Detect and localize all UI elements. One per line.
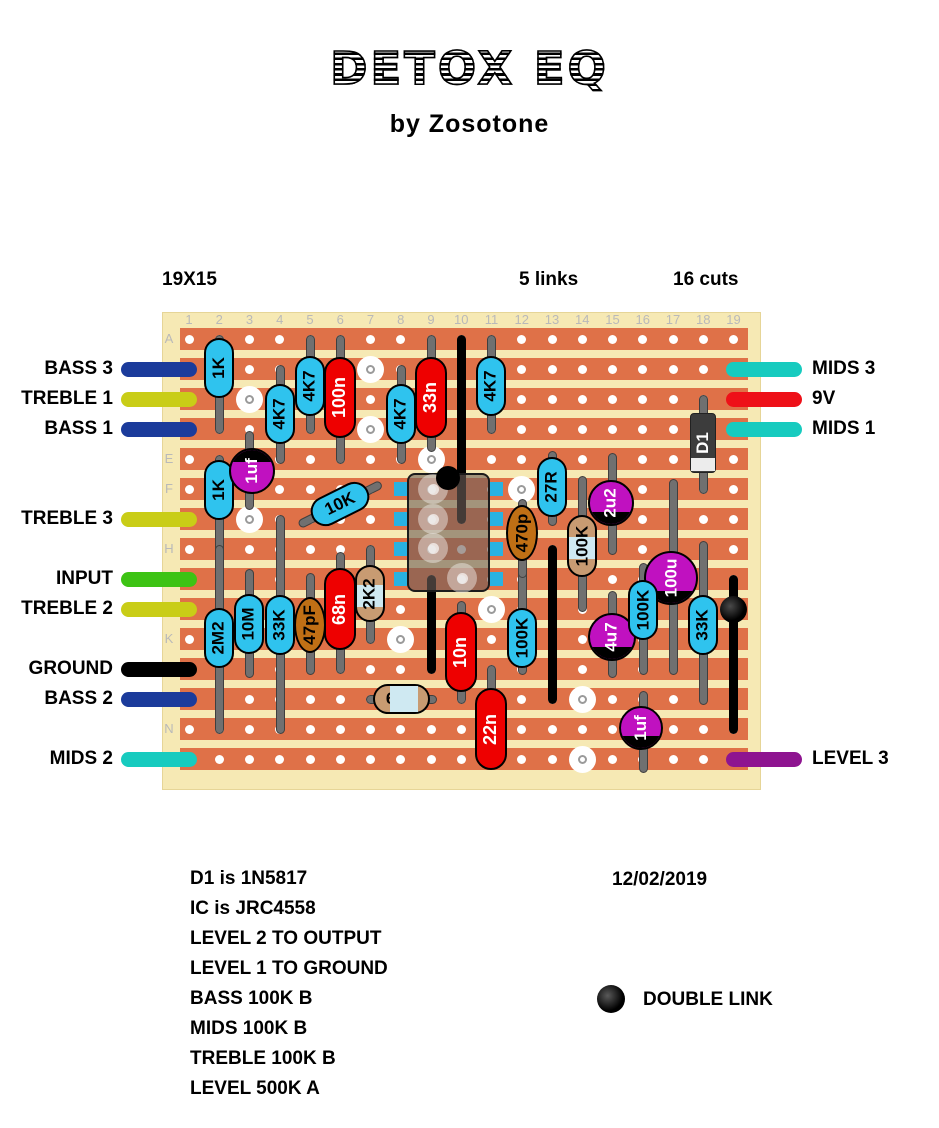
hole [669,455,678,464]
component-label: 2M2 [209,621,229,654]
hole [336,695,345,704]
hole [548,395,557,404]
hole [729,455,738,464]
component-label [396,635,405,644]
ic-pin [394,542,407,556]
column-number: 10 [451,313,471,327]
double-link-icon [597,985,625,1013]
component-label [517,485,526,494]
hole [608,395,617,404]
component-label: 10M [239,607,259,640]
hole [578,335,587,344]
hole [427,725,436,734]
column-number: 17 [663,313,683,327]
hole [396,605,405,614]
double-link-label: DOUBLE LINK [643,989,773,1011]
component-label [578,695,587,704]
track-cut [357,356,384,383]
pin-label-BASS 1: BASS 1 [0,419,113,439]
component-label [245,515,254,524]
hole [578,725,587,734]
column-number: 11 [482,313,502,327]
hole [669,335,678,344]
column-number: 15 [603,313,623,327]
component-label [245,395,254,404]
component-label [427,455,436,464]
column-number: 18 [693,313,713,327]
date-label: 12/02/2019 [612,869,707,891]
component-label [366,365,375,374]
component-label: 1K [209,479,229,501]
resistor-6K8: 6K8 [373,684,430,714]
resistor-100K: 100K [628,580,658,640]
capacitor-1uf: 1uf [229,448,275,494]
hole [245,365,254,374]
hole [548,755,557,764]
column-number: 3 [240,313,260,327]
capacitor-100n: 100n [324,357,356,438]
component-label: 1K [209,357,229,379]
track-cut [236,386,263,413]
note-line: LEVEL 500K A [190,1074,610,1104]
pin-label-INPUT: INPUT [0,569,113,589]
pin-label-TREBLE 3: TREBLE 3 [0,509,113,529]
pin-wire-9V [726,392,802,407]
hole [548,365,557,374]
resistor-33K: 33K [265,595,295,655]
component-label: 1uf [242,458,262,484]
column-number: 2 [209,313,229,327]
note-line: MIDS 100K B [190,1014,610,1044]
row-letter: F [161,482,177,496]
pin-wire-BASS 3 [121,362,197,377]
note-line: LEVEL 2 TO OUTPUT [190,924,610,954]
pin-label-MIDS 2: MIDS 2 [0,749,113,769]
hole [336,755,345,764]
pin-label-TREBLE 2: TREBLE 2 [0,599,113,619]
column-number: 12 [512,313,532,327]
component-label: 100u [661,559,681,598]
hole [366,395,375,404]
component-label: 33K [270,609,290,640]
ic-pin [490,482,503,496]
hole [275,485,284,494]
capacitor-2u2: 2u2 [588,480,634,526]
hole [608,335,617,344]
hole [366,665,375,674]
hole [517,425,526,434]
component-label: 27R [542,471,562,502]
hole [729,515,738,524]
component-label: 22n [481,713,502,744]
note-line: BASS 100K B [190,984,610,1014]
pin-label-TREBLE 1: TREBLE 1 [0,389,113,409]
hole [517,695,526,704]
ic-pin [394,572,407,586]
column-number: 14 [572,313,592,327]
component-label: 100K [572,526,592,567]
hole [608,695,617,704]
hole [457,755,466,764]
pin-label-BASS 2: BASS 2 [0,689,113,709]
ic-pin [490,542,503,556]
component-label: D1 [693,432,713,454]
pin-wire-INPUT [121,572,197,587]
hole [578,395,587,404]
hole [396,755,405,764]
ic-notch [436,466,460,490]
component-label: 4K7 [481,370,501,401]
resistor-4K7: 4K7 [265,384,295,444]
hole [517,725,526,734]
component-label: 470p [512,514,532,553]
track-cut [569,686,596,713]
component-label: 100K [512,618,532,659]
resistor-10M: 10M [234,594,264,654]
pin-wire-GROUND [121,662,197,677]
resistor-2K2: 2K2 [355,565,385,622]
resistor-4K7: 4K7 [386,384,416,444]
row-letter: K [161,632,177,646]
column-number: 5 [300,313,320,327]
hole [638,485,647,494]
track-cut [236,506,263,533]
pin-wire-BASS 2 [121,692,197,707]
links-count-label: 5 links [519,269,578,291]
note-line: TREBLE 100K B [190,1044,610,1074]
hole [245,725,254,734]
capacitor-68n: 68n [324,568,356,650]
column-number: 13 [542,313,562,327]
note-line: IC is JRC4558 [190,894,610,924]
hole [215,755,224,764]
hole [245,695,254,704]
resistor-1K: 1K [204,338,234,398]
hole [366,515,375,524]
hole [548,335,557,344]
hole [699,365,708,374]
hole [306,755,315,764]
component-label: 4K7 [391,398,411,429]
hole [578,425,587,434]
column-number: 8 [391,313,411,327]
hole [396,335,405,344]
hole [185,455,194,464]
hole [669,395,678,404]
hole [638,365,647,374]
column-number: 7 [361,313,381,327]
hole [638,425,647,434]
hole [699,515,708,524]
hole [185,725,194,734]
hole [245,755,254,764]
row-letter: H [161,542,177,556]
row-letter: E [161,452,177,466]
hole [245,335,254,344]
hole [275,335,284,344]
hole [517,455,526,464]
hole [608,575,617,584]
capacitor-470p: 470p [506,505,538,561]
hole [699,335,708,344]
hole [517,755,526,764]
ic-hole [418,504,448,534]
ic-hole [418,533,448,563]
resistor-100K: 100K [507,608,537,668]
hole [517,365,526,374]
hole [548,425,557,434]
component-label: 4K7 [300,370,320,401]
hole [638,395,647,404]
track-cut [478,596,505,623]
hole [306,545,315,554]
hole [185,335,194,344]
resistor-2M2: 2M2 [204,608,234,668]
hole [669,755,678,764]
hole [457,725,466,734]
page: 12345678910111213141516171819ABCDEFGHIJK… [0,0,939,1128]
component-label: 33K [693,609,713,640]
ic-pin [490,512,503,526]
pin-label-LEVEL 3: LEVEL 3 [812,749,939,769]
cuts-count-label: 16 cuts [673,269,738,291]
capacitor-1uf: 1uf [619,706,663,750]
component-label: 68n [330,593,351,624]
capacitor-33n: 33n [415,357,447,438]
component-label [487,605,496,614]
hole [729,545,738,554]
resistor-33K: 33K [688,595,718,655]
wire-link [548,545,557,704]
hole [366,455,375,464]
hole [578,665,587,674]
hole [306,695,315,704]
row-letter: N [161,722,177,736]
track-cut [357,416,384,443]
double-link-dot [720,596,747,623]
pin-label-GROUND: GROUND [0,659,113,679]
ic-pin [490,572,503,586]
board-size-label: 19X15 [162,269,217,291]
hole [669,725,678,734]
hole [669,695,678,704]
hole [306,455,315,464]
note-line: D1 is 1N5817 [190,864,610,894]
hole [336,725,345,734]
hole [608,425,617,434]
resistor-100K: 100K [567,515,597,577]
hole [396,665,405,674]
column-number: 19 [724,313,744,327]
pin-wire-MIDS 3 [726,362,802,377]
component-label [366,425,375,434]
component-label: 2u2 [601,488,621,517]
pin-wire-TREBLE 2 [121,602,197,617]
hole [578,455,587,464]
capacitor-47pF: 47pF [294,597,326,653]
track-cut [569,746,596,773]
component-label [457,573,468,584]
hole [608,755,617,764]
pin-label-BASS 3: BASS 3 [0,359,113,379]
page-title: DETOX EQ [0,42,939,95]
hole [608,725,617,734]
hole [669,365,678,374]
pin-wire-LEVEL 3 [726,752,802,767]
hole [699,755,708,764]
hole [487,635,496,644]
component-label [390,686,418,712]
column-number: 4 [270,313,290,327]
hole [245,545,254,554]
component-label [428,484,439,495]
component-label: 33n [421,382,442,413]
hole [638,515,647,524]
hole [306,725,315,734]
hole [638,455,647,464]
track-cut [387,626,414,653]
hole [638,335,647,344]
column-number: 9 [421,313,441,327]
component-label: 2K2 [360,578,380,609]
column-number: 6 [330,313,350,327]
hole [517,335,526,344]
hole [729,335,738,344]
hole [366,335,375,344]
hole [366,755,375,764]
hole [487,455,496,464]
pin-wire-MIDS 2 [121,752,197,767]
ic-hole [447,563,477,593]
pin-wire-BASS 1 [121,422,197,437]
capacitor-22n: 22n [475,688,507,770]
pin-wire-TREBLE 1 [121,392,197,407]
hole [427,755,436,764]
hole [185,635,194,644]
hole [185,485,194,494]
component-label [428,543,439,554]
hole [608,365,617,374]
component-label: 4K7 [270,398,290,429]
pin-label-MIDS 1: MIDS 1 [812,419,939,439]
resistor-27R: 27R [537,457,567,517]
component-label [578,755,587,764]
component-label [428,514,439,525]
hole [185,545,194,554]
component-label: 100K [633,590,653,631]
component-label: 4u7 [602,622,622,651]
hole [517,395,526,404]
ic-pin [394,512,407,526]
component-label: 10n [451,636,472,667]
column-number: 1 [179,313,199,327]
hole [306,485,315,494]
note-line: LEVEL 1 TO GROUND [190,954,610,984]
hole [578,635,587,644]
hole [396,725,405,734]
pin-label-9V: 9V [812,389,939,409]
hole [638,545,647,554]
component-label: 47pF [300,605,320,645]
component-label [691,458,715,471]
component-label: 100n [330,377,351,418]
page-subtitle: by Zosotone [0,110,939,139]
row-letter: A [161,332,177,346]
hole [669,425,678,434]
hole [729,485,738,494]
pin-label-MIDS 3: MIDS 3 [812,359,939,379]
diode-D1: D1 [690,413,716,473]
pin-wire-TREBLE 3 [121,512,197,527]
hole [699,725,708,734]
hole [578,365,587,374]
ic-pin [394,482,407,496]
component-label: 1uf [631,715,651,741]
hole [548,725,557,734]
resistor-4K7: 4K7 [476,356,506,416]
notes-list: D1 is 1N5817IC is JRC4558LEVEL 2 TO OUTP… [190,864,610,1114]
hole [275,755,284,764]
resistor-4K7: 4K7 [295,356,325,416]
column-number: 16 [633,313,653,327]
capacitor-10n: 10n [445,612,477,692]
pin-wire-MIDS 1 [726,422,802,437]
hole [366,725,375,734]
